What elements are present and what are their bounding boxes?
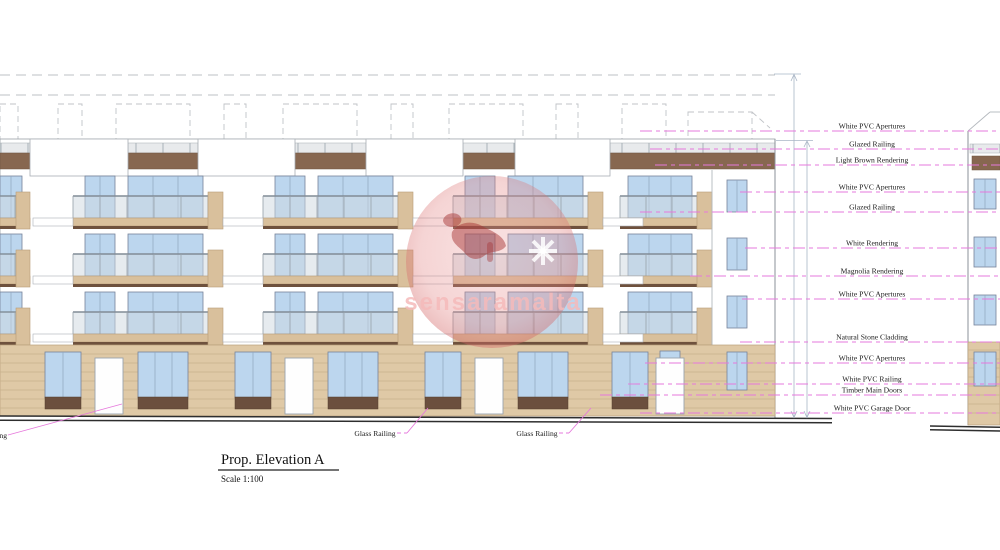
glass-railing-label-2: Glass Railing [516, 429, 557, 438]
timber-main-door [95, 358, 123, 414]
material-label-10: White PVC Railing [842, 375, 902, 384]
timber-main-door [285, 358, 313, 414]
roofline-dashed-outline [0, 75, 775, 95]
material-label-12: White PVC Garage Door [834, 404, 911, 413]
material-label-3: White PVC Apertures [839, 183, 906, 192]
timber-main-door [475, 358, 503, 414]
penthouse-dashed-outlines [0, 104, 770, 140]
drawing-title: Prop. Elevation A [221, 452, 325, 468]
material-label-5: White Rendering [846, 239, 898, 248]
material-label-9: White PVC Apertures [839, 354, 906, 363]
material-label-7: White PVC Apertures [839, 290, 906, 299]
timber-main-door [656, 358, 684, 414]
title-block: Prop. Elevation A Scale 1:100 [218, 452, 339, 484]
glass-railing-label-1: Glass Railing [354, 429, 395, 438]
material-label-6: Magnolia Rendering [841, 267, 904, 276]
drawing-scale: Scale 1:100 [221, 474, 264, 484]
material-label-11: Timber Main Doors [842, 386, 903, 395]
adjacent-building [930, 112, 1000, 431]
material-label-4: Glazed Railing [849, 203, 895, 212]
material-label-1: Glazed Railing [849, 140, 895, 149]
watermark-text: sensaramalta [404, 289, 581, 316]
watermark-compass-icon [529, 237, 557, 265]
material-label-8: Natural Stone Cladding [836, 333, 908, 342]
material-label-2: Light Brown Rendering [836, 156, 909, 165]
elevation-sheet: White PVC Apertures Glazed Railing Light… [0, 0, 1000, 550]
elevation-drawing: White PVC Apertures Glazed Railing Light… [0, 0, 1000, 550]
dimension-lines [774, 74, 813, 418]
material-label-0: White PVC Apertures [839, 122, 906, 131]
watermark-circle [406, 176, 578, 348]
glass-railing-label-3: Glass Railing [0, 431, 7, 440]
